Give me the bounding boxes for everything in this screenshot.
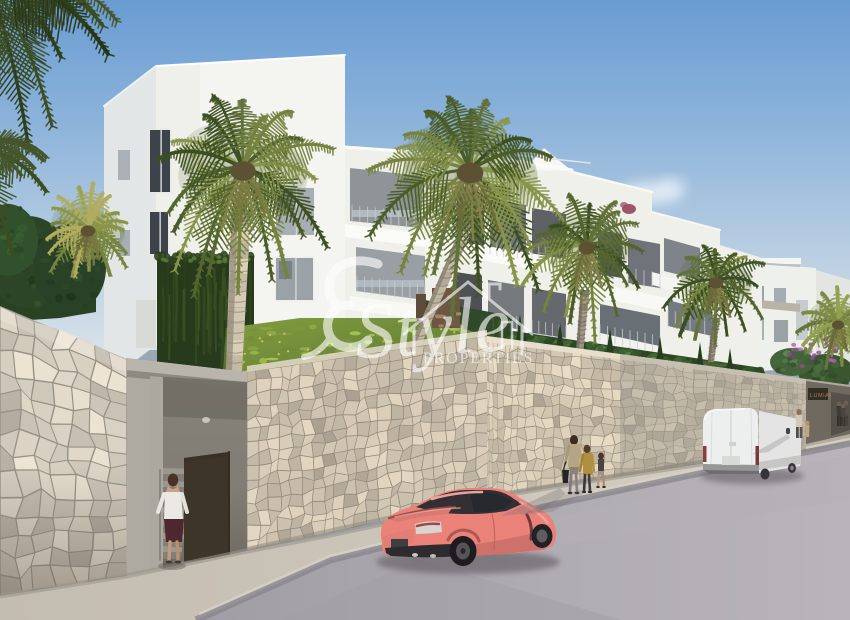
- svg-text:LUMIAR: LUMIAR: [810, 393, 834, 399]
- svg-text:PROPERTIES: PROPERTIES: [423, 350, 534, 367]
